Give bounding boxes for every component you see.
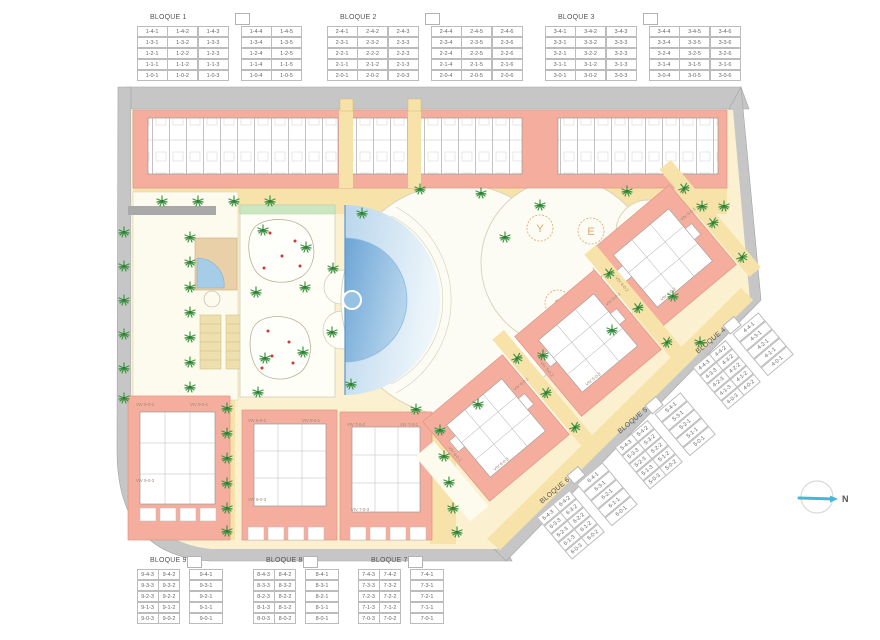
unit-cell: 1-2-3 — [198, 48, 229, 60]
unit-cell: 9-4-2 — [158, 569, 180, 581]
bloque-7-table: BLOQUE 77-4-37-4-27-4-17-3-37-3-27-3-17-… — [358, 556, 444, 624]
unit-cell: 7-3-1 — [410, 580, 444, 592]
unit-cell: 8-3-2 — [274, 580, 296, 592]
unit-cell: 3-3-4 — [649, 37, 680, 49]
unit-cell: 3-1-5 — [679, 59, 710, 71]
unit-cell: 7-4-3 — [358, 569, 380, 581]
unit-cell: 3-4-2 — [575, 26, 606, 38]
unit-cell: 3-0-4 — [649, 70, 680, 82]
unit-cell: 2-2-5 — [461, 48, 492, 60]
gap-cell — [296, 613, 306, 625]
unit-cell: 2-2-6 — [492, 48, 523, 60]
unit-cell: 2-4-5 — [461, 26, 492, 38]
unit-cell: 3-3-1 — [545, 37, 576, 49]
unit-cell: 2-1-1 — [327, 59, 358, 71]
unit-cell: 9-3-2 — [158, 580, 180, 592]
gap-cell — [180, 591, 190, 603]
building-strip-top — [133, 99, 727, 188]
unit-cell: 2-1-2 — [357, 59, 388, 71]
viv-label: VIV 9-0-3 — [136, 478, 155, 483]
bloque-9-table: BLOQUE 99-4-39-4-29-4-19-3-39-3-29-3-19-… — [137, 556, 223, 624]
unit-cell: 2-4-4 — [431, 26, 462, 38]
unit-cell: 9-3-1 — [189, 580, 223, 592]
viv-label: VIV 9-0-2 — [136, 402, 155, 407]
unit-cell: 1-0-1 — [137, 70, 168, 82]
gap-cell — [418, 48, 431, 60]
gap-cell — [296, 569, 306, 581]
unit-cell: 2-3-4 — [431, 37, 462, 49]
bloque-title: BLOQUE 8 — [266, 557, 303, 564]
unit-cell: 1-2-1 — [137, 48, 168, 60]
unit-cell: 9-2-3 — [137, 591, 159, 603]
gap-cell — [296, 580, 306, 592]
block1-plans — [148, 118, 338, 174]
unit-cell: 7-2-3 — [358, 591, 380, 603]
unit-cell: 1-0-4 — [241, 70, 272, 82]
unit-cell: 7-0-2 — [379, 613, 401, 625]
compass: N — [799, 481, 849, 513]
unit-cell: 3-4-6 — [710, 26, 741, 38]
viv-label: VIV 7-0-2 — [347, 422, 366, 427]
bloque-title: BLOQUE 2 — [340, 14, 377, 21]
unit-cell: 1-3-3 — [198, 37, 229, 49]
viv-label: VIV 7-0-1 — [400, 422, 419, 427]
bloque-title: BLOQUE 3 — [558, 14, 595, 21]
stair-core-box — [235, 13, 250, 25]
north-arrow-icon — [830, 496, 838, 503]
gap-cell — [228, 59, 241, 71]
unit-cell: 3-3-3 — [606, 37, 637, 49]
unit-cell: 3-1-3 — [606, 59, 637, 71]
unit-cell: 9-1-1 — [189, 602, 223, 614]
unit-cell: 3-2-4 — [649, 48, 680, 60]
unit-cell: 2-2-2 — [357, 48, 388, 60]
bloque-title: BLOQUE 1 — [150, 14, 187, 21]
unit-cell: 3-0-2 — [575, 70, 606, 82]
bloque-1-table: BLOQUE 11-4-11-4-21-4-31-4-41-4-51-3-11-… — [137, 13, 302, 81]
bloque-title: BLOQUE 7 — [371, 557, 408, 564]
unit-cell: 3-2-6 — [710, 48, 741, 60]
gap-cell — [636, 48, 649, 60]
unit-cell: 1-4-2 — [167, 26, 198, 38]
unit-cell: 2-1-6 — [492, 59, 523, 71]
unit-cell: 1-1-3 — [198, 59, 229, 71]
unit-cell: 3-1-6 — [710, 59, 741, 71]
unit-cell: 3-4-4 — [649, 26, 680, 38]
unit-cell: 2-4-3 — [388, 26, 419, 38]
unit-cell: 9-4-1 — [189, 569, 223, 581]
unit-cell: 7-3-3 — [358, 580, 380, 592]
unit-cell: 7-0-3 — [358, 613, 380, 625]
bloque-2-table: BLOQUE 22-4-12-4-22-4-32-4-42-4-52-4-62-… — [327, 13, 523, 81]
unit-cell: 2-4-6 — [492, 26, 523, 38]
unit-cell: 3-1-1 — [545, 59, 576, 71]
unit-cell: 8-2-1 — [305, 591, 339, 603]
unit-cell: 3-0-1 — [545, 70, 576, 82]
unit-cell: 2-4-1 — [327, 26, 358, 38]
unit-cell: 1-4-5 — [271, 26, 302, 38]
unit-cell: 2-2-1 — [327, 48, 358, 60]
gap-cell — [418, 37, 431, 49]
unit-cell: 3-3-6 — [710, 37, 741, 49]
unit-cell: 1-4-1 — [137, 26, 168, 38]
gap-cell — [418, 59, 431, 71]
unit-cell: 3-0-3 — [606, 70, 637, 82]
unit-cell: 1-4-4 — [241, 26, 272, 38]
stair-core-box — [643, 13, 658, 25]
unit-cell: 2-1-5 — [461, 59, 492, 71]
unit-cell: 8-0-1 — [305, 613, 339, 625]
unit-cell: 9-0-3 — [137, 613, 159, 625]
unit-cell: 2-0-6 — [492, 70, 523, 82]
unit-cell: 1-3-4 — [241, 37, 272, 49]
unit-cell: 9-1-3 — [137, 602, 159, 614]
unit-cell: 7-0-1 — [410, 613, 444, 625]
unit-cell: 8-1-1 — [305, 602, 339, 614]
unit-cell: 8-4-3 — [253, 569, 275, 581]
unit-cell: 1-0-5 — [271, 70, 302, 82]
bloque-8-table: BLOQUE 88-4-38-4-28-4-18-3-38-3-28-3-18-… — [253, 556, 339, 624]
stair-core-box — [187, 556, 202, 568]
garden-circle — [204, 291, 220, 307]
unit-cell: 7-4-1 — [410, 569, 444, 581]
gap-cell — [296, 602, 306, 614]
unit-cell: 1-3-5 — [271, 37, 302, 49]
gap-cell — [418, 26, 431, 38]
building-8 — [242, 410, 337, 540]
unit-cell: 2-2-4 — [431, 48, 462, 60]
unit-cell: 2-3-3 — [388, 37, 419, 49]
unit-cell: 7-4-2 — [379, 569, 401, 581]
unit-cell: 2-0-3 — [388, 70, 419, 82]
bloque-3-table: BLOQUE 33-4-13-4-23-4-33-4-43-4-53-4-63-… — [545, 13, 741, 81]
play-glyph: E — [587, 226, 594, 238]
pergola-bar — [128, 206, 216, 215]
unit-cell: 7-3-2 — [379, 580, 401, 592]
top-road — [127, 87, 749, 109]
unit-cell: 1-2-5 — [271, 48, 302, 60]
unit-cell: 8-2-3 — [253, 591, 275, 603]
unit-cell: 1-4-3 — [198, 26, 229, 38]
stair-core-box — [408, 556, 423, 568]
gap-cell — [228, 26, 241, 38]
unit-cell: 3-3-5 — [679, 37, 710, 49]
unit-cell: 3-2-3 — [606, 48, 637, 60]
unit-cell: 7-2-2 — [379, 591, 401, 603]
unit-cell: 3-0-5 — [679, 70, 710, 82]
unit-cell: 1-2-2 — [167, 48, 198, 60]
gap-cell — [180, 613, 190, 625]
unit-cell: 7-2-1 — [410, 591, 444, 603]
gap-cell — [296, 591, 306, 603]
unit-cell: 1-2-4 — [241, 48, 272, 60]
unit-cell: 3-2-5 — [679, 48, 710, 60]
viv-label: VIV 8-0-2 — [248, 418, 267, 423]
unit-cell: 8-3-1 — [305, 580, 339, 592]
unit-cell: 3-3-2 — [575, 37, 606, 49]
gap-cell — [636, 37, 649, 49]
unit-cell: 1-1-2 — [167, 59, 198, 71]
unit-cell: 7-1-1 — [410, 602, 444, 614]
unit-cell: 7-1-2 — [379, 602, 401, 614]
gap-cell — [636, 26, 649, 38]
compass-label: N — [842, 494, 849, 504]
unit-cell: 8-1-3 — [253, 602, 275, 614]
unit-cell: 8-1-2 — [274, 602, 296, 614]
unit-cell: 2-1-3 — [388, 59, 419, 71]
unit-cell: 9-1-2 — [158, 602, 180, 614]
unit-cell: 2-4-2 — [357, 26, 388, 38]
unit-cell: 3-2-2 — [575, 48, 606, 60]
stair-core-box — [425, 13, 440, 25]
unit-cell: 7-1-3 — [358, 602, 380, 614]
lower-pond — [250, 317, 310, 380]
building-7 — [340, 412, 432, 540]
unit-cell: 8-3-3 — [253, 580, 275, 592]
viv-label: VIV 8-0-1 — [302, 418, 321, 423]
unit-cell: 2-2-3 — [388, 48, 419, 60]
unit-cell: 8-2-2 — [274, 591, 296, 603]
unit-cell: 9-2-1 — [189, 591, 223, 603]
building-9 — [128, 396, 230, 540]
unit-cell: 9-3-3 — [137, 580, 159, 592]
play-glyph: Y — [536, 223, 544, 235]
gap-cell — [636, 59, 649, 71]
viv-label: VIV 9-0-1 — [190, 402, 209, 407]
unit-cell: 3-4-3 — [606, 26, 637, 38]
unit-cell: 1-1-1 — [137, 59, 168, 71]
unit-cell: 9-0-2 — [158, 613, 180, 625]
buildings-bottom — [128, 396, 432, 540]
unit-cell: 9-4-3 — [137, 569, 159, 581]
garden — [128, 192, 247, 400]
unit-cell: 1-3-2 — [167, 37, 198, 49]
unit-cell: 9-0-1 — [189, 613, 223, 625]
unit-cell: 8-4-1 — [305, 569, 339, 581]
unit-cell: 3-0-6 — [710, 70, 741, 82]
unit-cell: 2-3-5 — [461, 37, 492, 49]
gap-cell — [401, 602, 411, 614]
unit-cell: 2-3-1 — [327, 37, 358, 49]
unit-cell: 3-4-1 — [545, 26, 576, 38]
gap-cell — [401, 569, 411, 581]
unit-cell: 1-1-5 — [271, 59, 302, 71]
block3-plans — [558, 118, 718, 174]
site-plan-page: Y E A S — [0, 0, 880, 640]
gap-cell — [401, 580, 411, 592]
viv-label: VIV 7-0-3 — [351, 507, 370, 512]
unit-cell: 2-0-2 — [357, 70, 388, 82]
unit-cell: 2-1-4 — [431, 59, 462, 71]
gap-cell — [401, 591, 411, 603]
viv-label: VIV 8-0-3 — [248, 497, 267, 502]
unit-cell: 8-4-2 — [274, 569, 296, 581]
unit-cell: 2-0-1 — [327, 70, 358, 82]
unit-cell: 3-1-2 — [575, 59, 606, 71]
gap-cell — [228, 70, 241, 82]
stair-core-box — [303, 556, 318, 568]
unit-cell: 2-3-2 — [357, 37, 388, 49]
unit-cell: 2-0-4 — [431, 70, 462, 82]
gap-cell — [228, 48, 241, 60]
unit-cell: 1-1-4 — [241, 59, 272, 71]
unit-cell: 1-3-1 — [137, 37, 168, 49]
unit-cell: 9-2-2 — [158, 591, 180, 603]
gap-cell — [180, 580, 190, 592]
unit-cell: 8-0-2 — [274, 613, 296, 625]
unit-cell: 1-0-2 — [167, 70, 198, 82]
bloque-title: BLOQUE 9 — [150, 557, 187, 564]
unit-cell: 2-0-5 — [461, 70, 492, 82]
gap-cell — [180, 569, 190, 581]
unit-cell: 1-0-3 — [198, 70, 229, 82]
gap-cell — [636, 70, 649, 82]
gap-cell — [418, 70, 431, 82]
block2-plans — [352, 118, 522, 174]
gap-cell — [180, 602, 190, 614]
unit-cell: 3-1-4 — [649, 59, 680, 71]
unit-cell: 3-2-1 — [545, 48, 576, 60]
gap-cell — [401, 613, 411, 625]
unit-cell: 8-0-3 — [253, 613, 275, 625]
pool-island — [343, 291, 361, 309]
unit-cell: 2-3-6 — [492, 37, 523, 49]
unit-cell: 3-4-5 — [679, 26, 710, 38]
gap-cell — [228, 37, 241, 49]
